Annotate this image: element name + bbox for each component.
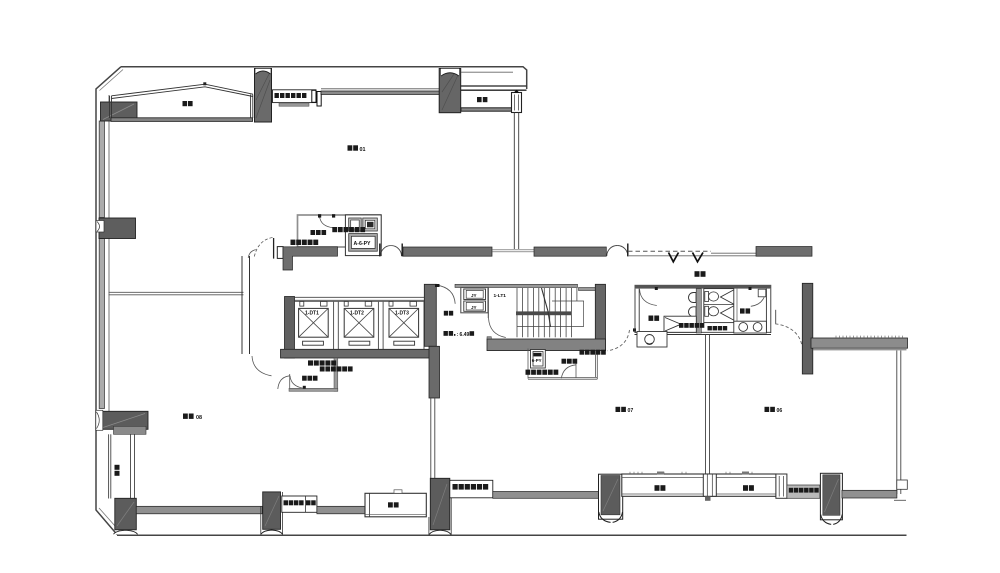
svg-text:: 6.49: : 6.49 bbox=[457, 332, 470, 338]
svg-text:1-LT1: 1-LT1 bbox=[494, 293, 507, 299]
svg-text:JY: JY bbox=[471, 305, 477, 310]
svg-text:6-PY: 6-PY bbox=[532, 358, 542, 363]
svg-text:1-DT2: 1-DT2 bbox=[350, 311, 364, 317]
svg-text:1-DT1: 1-DT1 bbox=[305, 311, 319, 317]
svg-text:A-6-PY: A-6-PY bbox=[354, 241, 372, 247]
svg-text:08: 08 bbox=[196, 415, 202, 421]
svg-text:07: 07 bbox=[628, 408, 634, 414]
svg-text:JY: JY bbox=[471, 293, 477, 298]
svg-text:01: 01 bbox=[360, 147, 366, 153]
svg-text:1-DT3: 1-DT3 bbox=[395, 311, 409, 317]
svg-text:06: 06 bbox=[777, 408, 783, 414]
